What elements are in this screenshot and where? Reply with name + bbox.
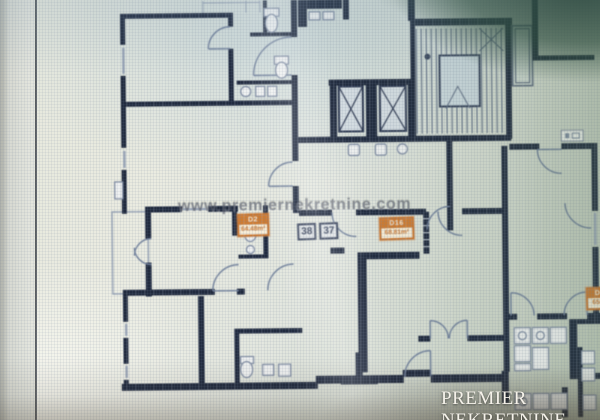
unit-area: 65m² xyxy=(588,297,600,308)
hall-number: 38 xyxy=(297,223,317,241)
terrace-outline xyxy=(512,26,533,86)
unit-id: D3 xyxy=(588,288,600,298)
stair-landing xyxy=(439,55,480,106)
photo-of-floor-plan: D2 64.48m² D16 68.81m² D3 65m² 38 37 www… xyxy=(0,0,600,420)
window-tag xyxy=(561,130,583,141)
balcony-outline xyxy=(112,212,149,294)
unit-stamp: D16 68.81m² xyxy=(379,216,415,240)
floor-plan-layer: D2 64.48m² D16 68.81m² D3 65m² 38 37 www… xyxy=(0,0,600,420)
upper-floor-cut-lines xyxy=(203,0,260,13)
unit-area: 68.81m² xyxy=(381,228,412,239)
staircase xyxy=(416,28,504,134)
unit-stamp: D3 65m² xyxy=(586,286,600,310)
hall-number: 37 xyxy=(319,222,339,240)
watermark-text: www.premiernekretnine.com xyxy=(178,196,438,217)
unit-area: 64.48m² xyxy=(239,224,267,235)
hall-number-badges: 38 37 xyxy=(297,222,339,241)
unit-stamp: D2 64.48m² xyxy=(237,213,270,237)
brand-text: PREMIER NEKRETNINE xyxy=(441,388,600,420)
